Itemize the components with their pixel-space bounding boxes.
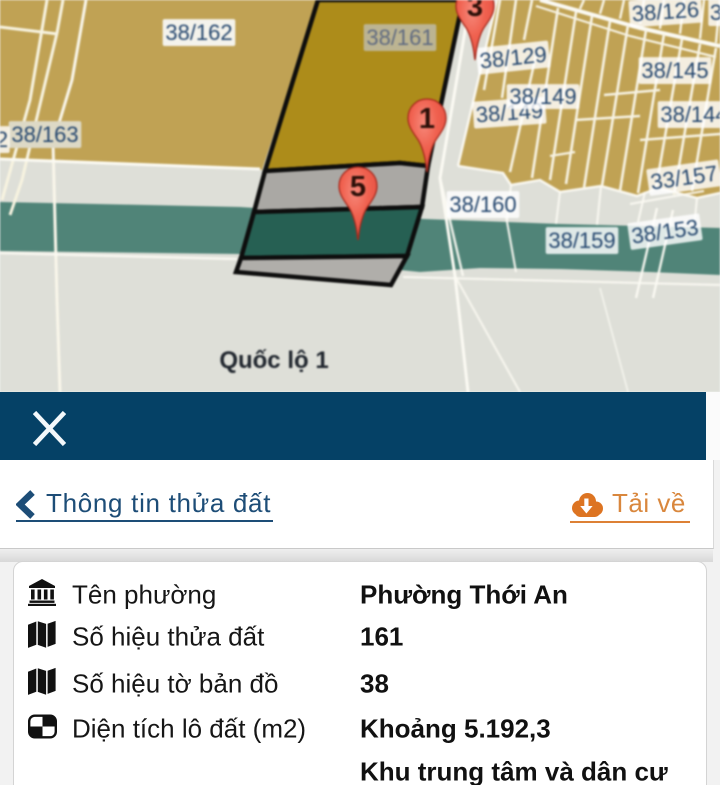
svg-text:38/145: 38/145 (641, 58, 708, 83)
svg-text:3: 3 (710, 0, 720, 25)
svg-text:1: 1 (419, 103, 435, 135)
svg-text:38/159: 38/159 (548, 228, 615, 253)
svg-text:38/161: 38/161 (366, 25, 433, 50)
svg-text:3: 3 (467, 0, 483, 23)
svg-text:38/144: 38/144 (660, 102, 720, 127)
svg-text:2: 2 (0, 127, 8, 152)
svg-text:Quốc lộ 1: Quốc lộ 1 (219, 347, 328, 374)
svg-text:38/149: 38/149 (509, 84, 576, 109)
svg-text:38/160: 38/160 (449, 192, 516, 217)
svg-text:38/162: 38/162 (165, 20, 232, 45)
svg-text:5: 5 (350, 171, 366, 203)
svg-text:38/163: 38/163 (11, 122, 78, 147)
